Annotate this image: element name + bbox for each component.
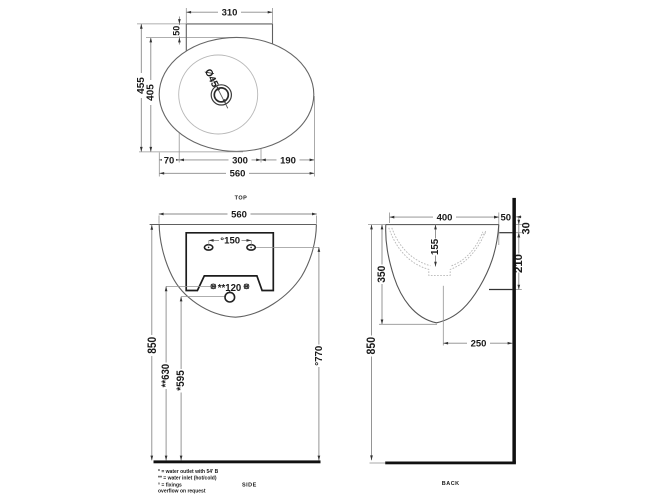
svg-text:** = water inlet (hot/cold): ** = water inlet (hot/cold) — [158, 475, 217, 481]
svg-text:400: 400 — [437, 213, 453, 224]
svg-text:405: 405 — [145, 84, 156, 101]
svg-text:155: 155 — [430, 238, 441, 255]
svg-text:850: 850 — [145, 337, 159, 354]
svg-text:300: 300 — [232, 155, 248, 166]
svg-text:560: 560 — [231, 209, 247, 220]
svg-text:*595: *595 — [175, 370, 187, 391]
svg-text:70: 70 — [164, 155, 175, 166]
svg-text:BACK: BACK — [442, 481, 460, 487]
svg-text:**630: **630 — [160, 364, 172, 388]
svg-text:310: 310 — [222, 8, 238, 19]
svg-text:350: 350 — [376, 266, 388, 283]
svg-text:* = water outlet with 54' B: * = water outlet with 54' B — [158, 469, 219, 475]
svg-text:50: 50 — [171, 26, 181, 36]
svg-text:850: 850 — [364, 337, 378, 355]
svg-text:° = fixings: ° = fixings — [158, 482, 182, 488]
svg-text:TOP: TOP — [235, 196, 248, 202]
svg-text:250: 250 — [471, 339, 487, 350]
svg-text:30: 30 — [521, 222, 533, 234]
svg-text:190: 190 — [280, 155, 296, 166]
svg-text:SIDE: SIDE — [242, 483, 257, 489]
svg-text:50: 50 — [501, 212, 512, 223]
svg-text:°770: °770 — [313, 346, 325, 366]
svg-text:overflow on request: overflow on request — [158, 489, 206, 495]
svg-text:560: 560 — [230, 169, 246, 180]
svg-text:°150: °150 — [220, 235, 240, 246]
